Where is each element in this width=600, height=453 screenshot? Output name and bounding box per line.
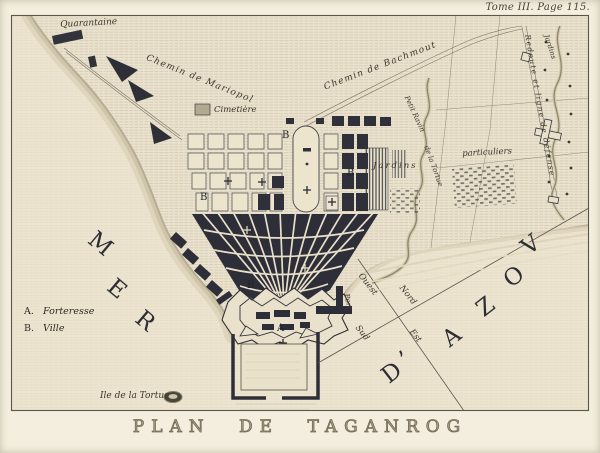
marker-ville-3: B <box>347 169 354 179</box>
map-title: PLAN DE TAGANROG <box>0 419 600 436</box>
marker-ville-4: B <box>247 281 254 291</box>
legend-key-a: A. <box>24 306 40 317</box>
central-plaza <box>293 126 319 212</box>
legend-key-b: B. <box>24 323 40 334</box>
fortress <box>222 288 350 348</box>
label-jardins: Jardins <box>373 162 418 171</box>
legend: A. Forteresse B. Ville <box>24 306 94 340</box>
legend-label-forteresse: Forteresse <box>43 306 94 317</box>
map-page: Tome III. Page 115. Quarantaine Chemin d… <box>0 0 600 453</box>
label-port: Port <box>343 293 354 310</box>
label-ile-de-la-tortue: Ile de la Tortue <box>100 392 169 401</box>
legend-item-ville: B. Ville <box>24 323 94 334</box>
cemetery-square <box>195 104 210 115</box>
marker-ville-1: B <box>282 131 289 141</box>
page-reference: Tome III. Page 115. <box>486 2 590 13</box>
marker-ville-2: B <box>200 193 207 203</box>
map-engraving <box>0 0 600 453</box>
legend-item-forteresse: A. Forteresse <box>24 306 94 317</box>
label-cimetiere: Cimetière <box>214 106 257 115</box>
legend-label-ville: Ville <box>43 323 64 334</box>
marker-fortress: A <box>277 324 284 334</box>
